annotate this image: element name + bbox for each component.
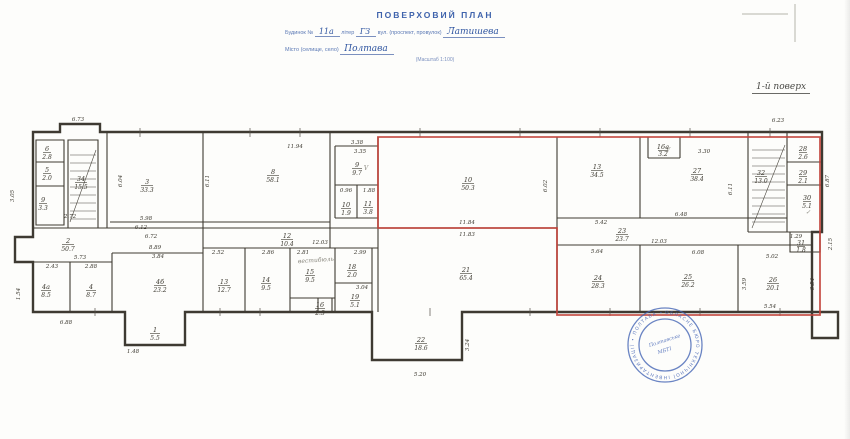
svg-text:2.6: 2.6 (797, 154, 808, 161)
svg-text:38.4: 38.4 (690, 176, 704, 183)
svg-text:2.3: 2.3 (314, 310, 325, 317)
svg-text:8.89: 8.89 (149, 245, 162, 251)
svg-text:5.1: 5.1 (350, 302, 360, 309)
svg-text:8: 8 (271, 168, 275, 176)
official-stamp: ОБЛАСНЕ БЮРО ТЕХНІЧНОЇ ІНВЕНТАРИЗАЦІЇ • … (628, 308, 702, 382)
svg-text:6: 6 (45, 145, 49, 153)
svg-text:3.05: 3.05 (10, 189, 16, 202)
svg-text:27: 27 (692, 167, 702, 175)
svg-text:2.81: 2.81 (296, 250, 309, 256)
svg-text:24: 24 (593, 274, 602, 282)
room-label: 311.8 (796, 239, 806, 254)
svg-text:65.4: 65.4 (459, 275, 473, 282)
svg-text:11.84: 11.84 (459, 220, 475, 226)
svg-text:5.42: 5.42 (595, 220, 608, 226)
svg-text:6.72: 6.72 (145, 234, 158, 240)
svg-text:2.15: 2.15 (828, 237, 834, 251)
svg-text:34.5: 34.5 (590, 172, 604, 179)
svg-text:5: 5 (45, 166, 49, 174)
svg-text:31: 31 (797, 239, 805, 247)
svg-text:23.7: 23.7 (614, 236, 629, 243)
svg-text:3.59: 3.59 (742, 277, 748, 290)
svg-text:6.11: 6.11 (728, 183, 734, 195)
svg-text:34: 34 (77, 175, 85, 183)
svg-text:✓: ✓ (805, 209, 810, 216)
svg-text:1: 1 (153, 326, 157, 334)
svg-text:26: 26 (768, 276, 777, 284)
svg-text:10: 10 (464, 176, 472, 184)
svg-text:33.3: 33.3 (140, 187, 154, 194)
svg-text:11: 11 (364, 200, 372, 208)
svg-text:50.3: 50.3 (461, 185, 475, 192)
room-label: 101.9 (341, 201, 351, 217)
room-label: 250.7 (61, 237, 75, 253)
svg-text:2.8: 2.8 (41, 154, 52, 161)
svg-text:6.73: 6.73 (72, 117, 85, 123)
svg-text:5.20: 5.20 (414, 372, 427, 378)
svg-text:23.2: 23.2 (152, 287, 167, 294)
room-label: 4б23.2 (152, 278, 167, 294)
svg-text:2.52: 2.52 (211, 250, 225, 256)
svg-text:4б: 4б (155, 278, 164, 286)
svg-text:13: 13 (220, 278, 228, 286)
svg-text:13: 13 (593, 163, 601, 171)
svg-text:2.86: 2.86 (261, 250, 275, 256)
svg-text:3.24: 3.24 (465, 338, 471, 351)
svg-text:15.5: 15.5 (74, 184, 88, 191)
room-label: 162.3 (314, 301, 325, 317)
svg-text:2.1: 2.1 (797, 178, 808, 185)
svg-text:3: 3 (145, 178, 149, 186)
svg-text:6.12: 6.12 (135, 225, 148, 231)
svg-text:1.54: 1.54 (16, 287, 22, 300)
stamp-center-line2: МБТІ (656, 346, 673, 357)
svg-text:20.1: 20.1 (765, 285, 779, 292)
svg-text:50.7: 50.7 (61, 246, 75, 253)
svg-text:3.3: 3.3 (38, 205, 48, 212)
svg-text:29: 29 (798, 169, 807, 177)
svg-text:19: 19 (351, 293, 359, 301)
svg-text:12: 12 (283, 232, 291, 240)
room-label: 2165.4 (459, 266, 473, 282)
svg-text:4: 4 (88, 283, 93, 291)
room-label: 2428.3 (590, 274, 605, 290)
svg-text:11.83: 11.83 (459, 232, 475, 238)
room-label: 1312.7 (217, 278, 231, 294)
room-label: 3213.0 (754, 169, 768, 185)
stamp-ring-text: ОБЛАСНЕ БЮРО ТЕХНІЧНОЇ ІНВЕНТАРИЗАЦІЇ • … (629, 310, 700, 380)
svg-text:18: 18 (348, 263, 356, 271)
svg-text:2.72: 2.72 (63, 214, 77, 220)
room-label: 62.8 (41, 145, 52, 161)
svg-text:6.04: 6.04 (118, 174, 124, 187)
svg-text:3.8: 3.8 (363, 209, 373, 216)
svg-text:16: 16 (316, 301, 324, 309)
svg-text:0.96: 0.96 (340, 188, 353, 194)
svg-text:9.5: 9.5 (305, 277, 315, 284)
floor-plan-drawing: 15.5 250.7 333.3 4а8.5 48.7 4б23.2 62.8 … (0, 0, 850, 439)
svg-text:14: 14 (262, 276, 270, 284)
room-label: 2738.4 (690, 167, 704, 183)
svg-text:5.64: 5.64 (591, 249, 604, 255)
svg-text:вестибюль: вестибюль (298, 256, 334, 265)
stamp-center-line1: Полтавське (647, 333, 681, 349)
svg-text:2.99: 2.99 (353, 250, 367, 256)
svg-text:2.88: 2.88 (84, 264, 98, 270)
svg-text:5.73: 5.73 (74, 255, 87, 261)
room-label: 48.7 (86, 283, 96, 299)
svg-text:6.87: 6.87 (825, 174, 831, 187)
room-label: 2323.7 (614, 227, 629, 243)
svg-text:5.98: 5.98 (140, 216, 153, 222)
room-label: 2218.6 (414, 336, 428, 352)
svg-text:6.48: 6.48 (675, 212, 688, 218)
svg-text:8.5: 8.5 (41, 292, 51, 299)
room-label: 4а8.5 (41, 283, 51, 299)
svg-text:6.08: 6.08 (692, 250, 705, 256)
svg-text:V: V (364, 165, 369, 172)
svg-text:4а: 4а (41, 283, 50, 291)
outer-wall (15, 124, 822, 360)
room-label: 1210.4 (280, 232, 294, 248)
svg-text:3.54: 3.54 (810, 277, 816, 290)
svg-text:26.2: 26.2 (680, 282, 695, 289)
svg-text:1.9: 1.9 (341, 210, 351, 217)
svg-text:25: 25 (683, 273, 692, 281)
svg-text:5.5: 5.5 (150, 335, 160, 342)
svg-text:5.54: 5.54 (764, 304, 777, 310)
svg-text:1.8: 1.8 (796, 247, 806, 254)
room-label: 113.8 (363, 200, 373, 216)
svg-text:9: 9 (41, 196, 45, 204)
svg-text:1.29: 1.29 (790, 234, 803, 240)
svg-text:6.88: 6.88 (60, 320, 73, 326)
svg-text:58.1: 58.1 (266, 177, 279, 184)
staircase-right (752, 145, 785, 228)
room-label: 305.1 (802, 194, 812, 210)
svg-text:28.3: 28.3 (590, 283, 605, 290)
svg-text:15: 15 (306, 268, 314, 276)
svg-text:10.4: 10.4 (280, 241, 294, 248)
svg-text:1.88: 1.88 (363, 188, 376, 194)
room-label: 292.1 (797, 169, 808, 185)
svg-text:1.48: 1.48 (127, 349, 140, 355)
paper-edge-shadow (844, 0, 850, 439)
svg-text:12.03: 12.03 (651, 239, 667, 245)
svg-text:22: 22 (416, 336, 425, 344)
svg-text:9.7: 9.7 (352, 170, 362, 177)
svg-text:6.23: 6.23 (772, 118, 785, 124)
room-label: 1050.3 (461, 176, 475, 192)
svg-text:2: 2 (65, 237, 70, 245)
svg-text:30: 30 (803, 194, 811, 202)
svg-text:3.04: 3.04 (356, 285, 369, 291)
svg-text:6.11: 6.11 (205, 175, 211, 187)
room-label: 149.5 (261, 276, 271, 292)
svg-text:V: V (666, 147, 671, 154)
svg-text:9: 9 (355, 161, 359, 169)
svg-text:23: 23 (617, 227, 626, 235)
room-label: 15.5 (150, 326, 160, 342)
room-label: 195.1 (350, 293, 360, 309)
svg-text:3.84: 3.84 (152, 254, 165, 260)
svg-text:3.30: 3.30 (698, 149, 711, 155)
svg-text:2.0: 2.0 (41, 175, 52, 182)
svg-text:28: 28 (798, 145, 807, 153)
svg-text:18.6: 18.6 (414, 345, 428, 352)
room-label: 182.0 (346, 263, 357, 279)
svg-text:12.03: 12.03 (312, 240, 328, 246)
room-label: 282.6 (797, 145, 808, 161)
svg-text:3.38: 3.38 (351, 140, 364, 146)
room-label: 2526.2 (680, 273, 695, 289)
svg-text:3.35: 3.35 (354, 149, 367, 155)
svg-text:12.7: 12.7 (217, 287, 231, 294)
room-label: 52.0 (41, 166, 52, 182)
scanned-floor-plan-page: ПОВЕРХОВИЙ ПЛАН Будинок № 11а літер ГЗ в… (0, 0, 850, 439)
svg-text:5.02: 5.02 (766, 254, 779, 260)
room-label: 1334.5 (590, 163, 604, 179)
svg-text:2.0: 2.0 (346, 272, 357, 279)
room-label: 2620.1 (765, 276, 779, 292)
svg-text:21: 21 (461, 266, 470, 274)
svg-text:32: 32 (757, 169, 765, 177)
svg-text:13.0: 13.0 (754, 178, 768, 185)
svg-text:9.5: 9.5 (261, 285, 271, 292)
room-label: 333.3 (140, 178, 154, 194)
svg-text:11.94: 11.94 (287, 144, 303, 150)
room-label: 159.5 (305, 268, 315, 284)
svg-text:2.43: 2.43 (45, 264, 59, 270)
svg-text:10: 10 (342, 201, 350, 209)
room-label: 99.7 (352, 161, 362, 177)
inner-walls (33, 132, 822, 312)
svg-text:6.02: 6.02 (543, 179, 549, 192)
svg-text:8.7: 8.7 (86, 292, 96, 299)
room-label: 93.3 (38, 196, 48, 212)
paper-artifact (742, 4, 795, 42)
room-label: 858.1 (266, 168, 279, 184)
